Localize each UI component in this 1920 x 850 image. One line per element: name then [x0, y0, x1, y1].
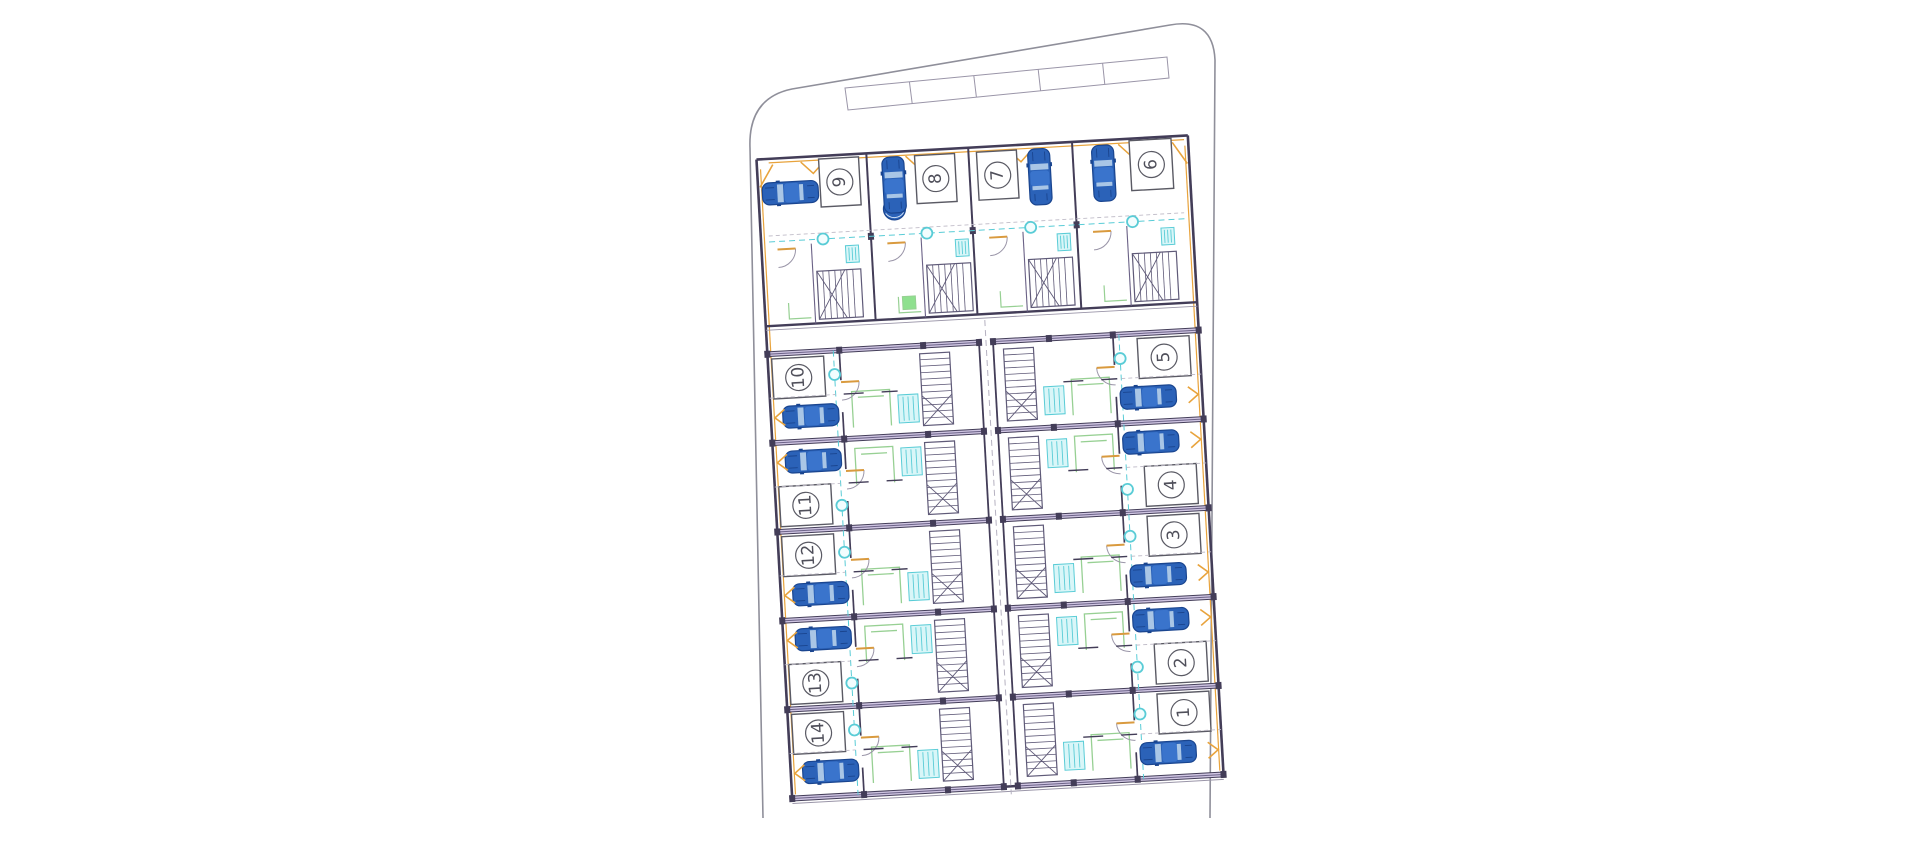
stairs-icon [1008, 436, 1042, 510]
shower-icon [1044, 386, 1066, 415]
door-arc-icon [778, 249, 797, 268]
utility-connection-icon [1122, 484, 1134, 496]
unit-parking-plate: 7 [976, 150, 1019, 200]
green-utility-icon [902, 296, 916, 310]
car-icon [1130, 560, 1187, 589]
car-icon [880, 156, 909, 213]
building: 9876101112131454321 [753, 135, 1226, 806]
stairs-icon [1013, 525, 1047, 599]
stairs-icon [927, 263, 974, 313]
wardrobe-outline-icon [862, 567, 902, 605]
site-plan-canvas: 9876101112131454321 [0, 0, 1920, 850]
unit-plate-label: 9 [830, 176, 851, 188]
stairs-icon [920, 352, 954, 426]
car-icon [792, 579, 849, 608]
utility-connection-icon [836, 500, 848, 512]
utility-connection-icon [839, 546, 851, 558]
utility-connection-icon [921, 227, 933, 239]
stairs-icon [1132, 251, 1179, 301]
utility-connection-icon [817, 233, 829, 245]
shower-icon [1057, 616, 1079, 645]
unit-parking-plate: 11 [779, 484, 833, 527]
facade-door-mark-icon [1208, 742, 1219, 759]
utility-connection-icon [1124, 530, 1136, 542]
car-icon [802, 757, 859, 786]
unit-plate-label: 6 [1141, 159, 1162, 171]
unit-9: 9 [761, 157, 862, 210]
unit-4: 4 [1008, 426, 1208, 514]
facade-door-mark-icon [1190, 431, 1201, 448]
stairs-icon [934, 619, 968, 693]
stairs-icon [1003, 347, 1037, 421]
wardrobe-outline-icon [855, 446, 895, 484]
door-arc-icon [851, 559, 870, 578]
unit-plate-label: 14 [808, 722, 829, 745]
car-icon [1026, 148, 1055, 205]
stairs-icon [1023, 703, 1057, 777]
door-arc-icon [1102, 456, 1121, 475]
unit-7: 7 [976, 148, 1054, 208]
unit-plate-label: 1 [1174, 707, 1195, 719]
unit-plate-label: 7 [987, 169, 1008, 181]
unit-parking-plate: 6 [1129, 138, 1174, 190]
car-icon [762, 178, 819, 207]
corridor-line-icon [1000, 290, 1023, 307]
unit-8: 8 [880, 153, 958, 213]
door-arc-icon [1107, 545, 1126, 564]
corridor-line-icon [1104, 284, 1127, 301]
car-icon [785, 447, 842, 476]
shower-icon [1063, 741, 1085, 770]
unit-parking-plate: 10 [772, 356, 826, 399]
shower-icon [1047, 439, 1069, 468]
unit-parking-plate: 2 [1154, 641, 1208, 684]
stairs-icon [925, 441, 959, 515]
unit-parking-plate: 4 [1144, 463, 1198, 506]
door-arc-icon [1117, 722, 1136, 741]
utility-connection-icon [1134, 708, 1146, 720]
unit-parking-plate: 14 [792, 712, 846, 755]
door-arc-icon [887, 242, 906, 261]
car-icon [782, 402, 839, 431]
unit-10: 10 [768, 349, 954, 434]
entry-level-band [777, 223, 1179, 325]
stairs-icon [930, 530, 964, 604]
utility-connection-icon [1114, 353, 1126, 365]
unit-13: 13 [783, 618, 969, 705]
unit-plate-label: 13 [805, 672, 826, 695]
unit-plate-label: 4 [1161, 479, 1182, 491]
door-arc-icon [1112, 633, 1131, 652]
unit-12: 12 [778, 527, 964, 612]
car-icon [795, 624, 852, 653]
wardrobe-outline-icon [865, 624, 905, 662]
wardrobe-outline-icon [1084, 612, 1124, 650]
unit-14: 14 [788, 705, 974, 790]
shower-icon [1057, 233, 1071, 251]
unit-plate-label: 8 [926, 173, 947, 185]
stairs-icon [817, 269, 864, 319]
unit-parking-plate: 1 [1157, 691, 1211, 734]
shower-icon [911, 625, 933, 654]
stairs-icon [1018, 614, 1052, 688]
unit-1: 1 [1023, 691, 1223, 777]
door-arc-icon [1097, 367, 1116, 386]
unit-plate-label: 2 [1171, 657, 1192, 669]
unit-parking-plate: 8 [915, 153, 958, 203]
unit-5: 5 [1003, 335, 1203, 421]
shower-icon [918, 749, 940, 778]
facade-door-mark-icon [1200, 609, 1211, 626]
door-arc-icon [861, 737, 880, 756]
shower-icon [1054, 563, 1076, 592]
unit-parking-plate: 13 [789, 662, 843, 705]
car-icon [1132, 605, 1189, 634]
door-arc-icon [989, 237, 1008, 256]
utility-connection-icon [846, 677, 858, 689]
stairs-icon [939, 708, 973, 782]
car-icon [1122, 428, 1179, 457]
wardrobe-outline-icon [1074, 434, 1114, 472]
shower-icon [1161, 227, 1175, 245]
shower-icon [908, 572, 930, 601]
facade-door-mark-icon [1198, 564, 1209, 581]
utility-connection-icon [829, 369, 841, 381]
utility-connection-icon [1132, 661, 1144, 673]
unit-plate-label: 5 [1154, 351, 1175, 363]
unit-plate-label: 12 [798, 544, 819, 567]
utility-connection-icon [1127, 216, 1139, 228]
wardrobe-outline-icon [871, 745, 911, 783]
car-icon [1089, 145, 1118, 202]
utility-connection-icon [849, 724, 861, 736]
wardrobe-outline-icon [852, 389, 892, 427]
unit-plate-label: 10 [788, 366, 809, 389]
unit-2: 2 [1018, 604, 1218, 692]
car-icon [1120, 383, 1177, 412]
shower-icon [845, 245, 859, 263]
wardrobe-outline-icon [1091, 733, 1131, 771]
shower-icon [898, 394, 920, 423]
sidewalk-band [845, 57, 1169, 110]
utility-connection-icon [1025, 222, 1037, 234]
wardrobe-outline-icon [1071, 377, 1111, 415]
door-arc-icon [841, 381, 860, 400]
door-arc-icon [1093, 231, 1112, 250]
unit-plate-label: 3 [1164, 529, 1185, 541]
wardrobe-outline-icon [1081, 555, 1121, 593]
shower-icon [955, 239, 969, 257]
corridor-line-icon [789, 302, 812, 319]
unit-parking-plate: 3 [1147, 513, 1201, 556]
stairs-icon [1028, 257, 1075, 307]
unit-11: 11 [773, 440, 959, 527]
floor-plan-drawing: 9876101112131454321 [0, 0, 1920, 850]
unit-parking-plate: 9 [819, 157, 862, 207]
unit-3: 3 [1013, 513, 1213, 599]
unit-parking-plate: 5 [1137, 336, 1191, 379]
unit-6: 6 [1089, 138, 1174, 201]
shower-icon [901, 447, 923, 476]
unit-plate-label: 11 [795, 494, 816, 517]
facade-door-mark-icon [1188, 386, 1199, 403]
unit-parking-plate: 12 [782, 534, 836, 577]
car-icon [1140, 738, 1197, 767]
